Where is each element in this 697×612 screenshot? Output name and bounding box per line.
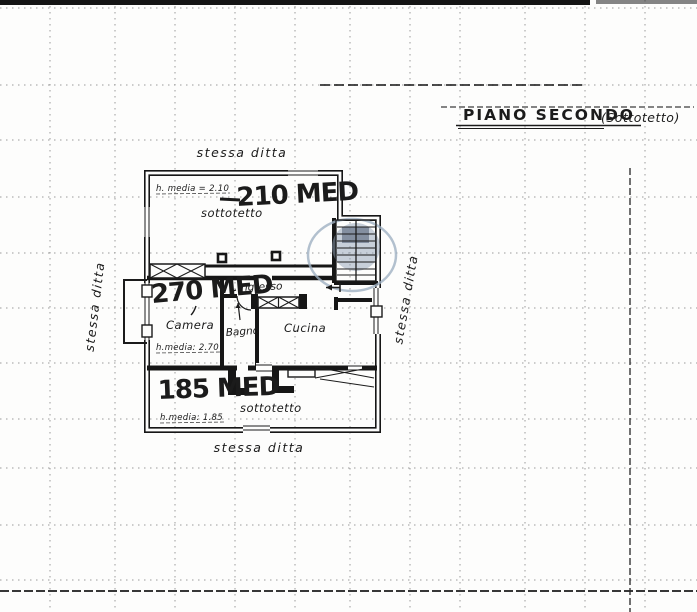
- label-entry: Ingresso: [238, 280, 283, 294]
- grid-lines: [0, 0, 697, 612]
- label-attic-top: sottotetto: [201, 206, 263, 220]
- height-note-bottom: h.media: 1.85: [160, 413, 223, 423]
- boundary-label-left: stessa ditta: [82, 261, 108, 353]
- title-block: PIANO SECONDO (Sottotetto): [441, 106, 694, 129]
- height-note-top: h. media = 2.10: [156, 184, 229, 194]
- label-bath: Bagno: [225, 325, 259, 339]
- scanned-floor-plan-page: PIANO SECONDO (Sottotetto) stessa ditta …: [0, 0, 697, 612]
- page-title-suffix: (Sottotetto): [601, 110, 680, 125]
- scan-edge-marks: [0, 0, 697, 612]
- boundary-label-bottom: stessa ditta: [214, 440, 305, 455]
- height-note-middle: h.media: 2.70: [156, 343, 219, 353]
- pillar-symbols: [218, 252, 280, 262]
- floor-plan-drawing: PIANO SECONDO (Sottotetto) stessa ditta …: [0, 0, 697, 612]
- boundary-label-top: stessa ditta: [197, 145, 288, 160]
- label-kitchen: Cucina: [284, 321, 326, 335]
- label-bedroom: Camera: [166, 318, 214, 332]
- label-attic-bottom: sottotetto: [240, 401, 302, 415]
- plan-labels: h. media = 2.10 210 MED sottotetto 270 M…: [150, 177, 359, 423]
